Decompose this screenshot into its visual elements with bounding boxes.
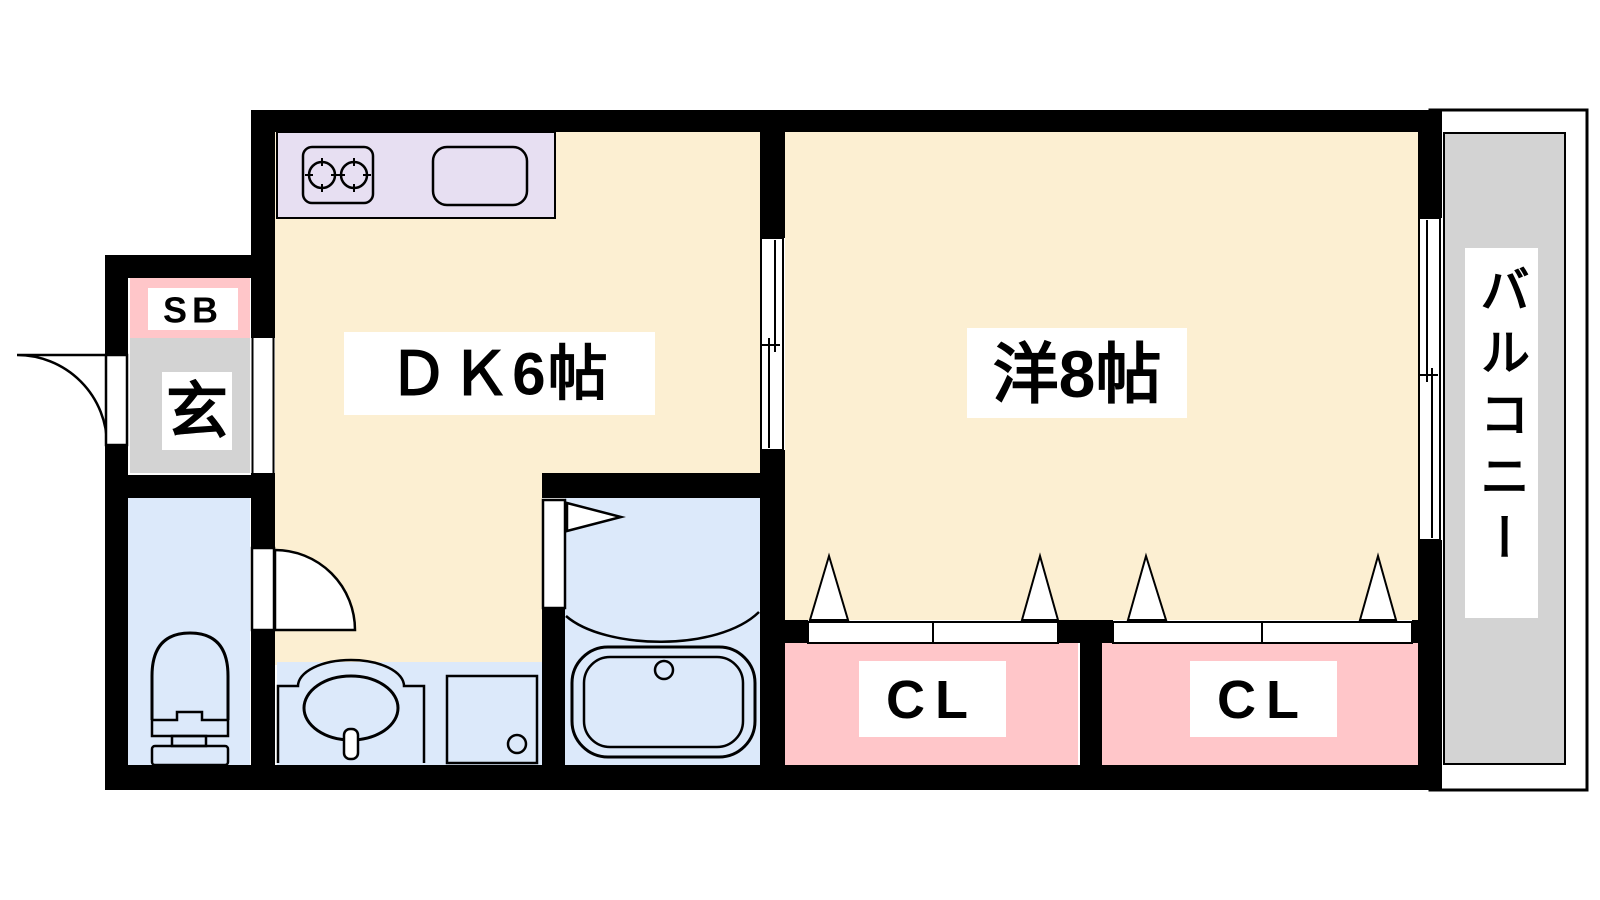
floor-plan: ＤＫ6帖 洋8帖 SB 玄 CL CL バルコニー	[0, 0, 1600, 900]
wall-sb-top	[105, 255, 275, 278]
entrance-door-swing	[17, 355, 107, 445]
washbasin-faucet-icon	[344, 729, 358, 759]
wall-closet-top-b	[1058, 620, 1113, 643]
washroom-floor	[277, 662, 542, 765]
wall-closet-top-a	[784, 620, 808, 643]
toilet-door-leaf	[252, 548, 274, 630]
western-room-label: 洋8帖	[993, 337, 1162, 411]
shoe-box-label: SB	[163, 290, 223, 331]
wall-right-upper	[1418, 110, 1442, 218]
balcony-window	[1419, 218, 1440, 540]
wall-genkan-bottom	[105, 475, 275, 498]
wall-left-upper	[105, 255, 128, 355]
wall-top	[251, 110, 1442, 132]
bathroom-door-leaf	[543, 500, 565, 608]
genkan-opening	[251, 338, 275, 473]
wall-bath-top	[542, 473, 785, 498]
wall-dk-left-a	[251, 110, 275, 338]
floor-plan-page: ＤＫ6帖 洋8帖 SB 玄 CL CL バルコニー	[0, 0, 1600, 900]
wall-bath-left	[542, 608, 565, 765]
wall-right-lower	[1418, 540, 1442, 790]
toilet-room-floor	[128, 498, 250, 765]
genkan-label: 玄	[166, 378, 228, 447]
wall-middle-upper	[760, 110, 785, 238]
wall-middle-lower	[760, 450, 785, 790]
wall-dk-left-c	[251, 630, 275, 765]
closet-right-label: CL	[1217, 670, 1309, 730]
closet-left-label: CL	[886, 670, 978, 730]
dk-label: ＤＫ6帖	[388, 341, 609, 408]
wall-closet-divider	[1080, 643, 1102, 765]
entrance-door-leaf	[106, 355, 127, 445]
balcony-label: バルコニー	[1473, 264, 1529, 574]
